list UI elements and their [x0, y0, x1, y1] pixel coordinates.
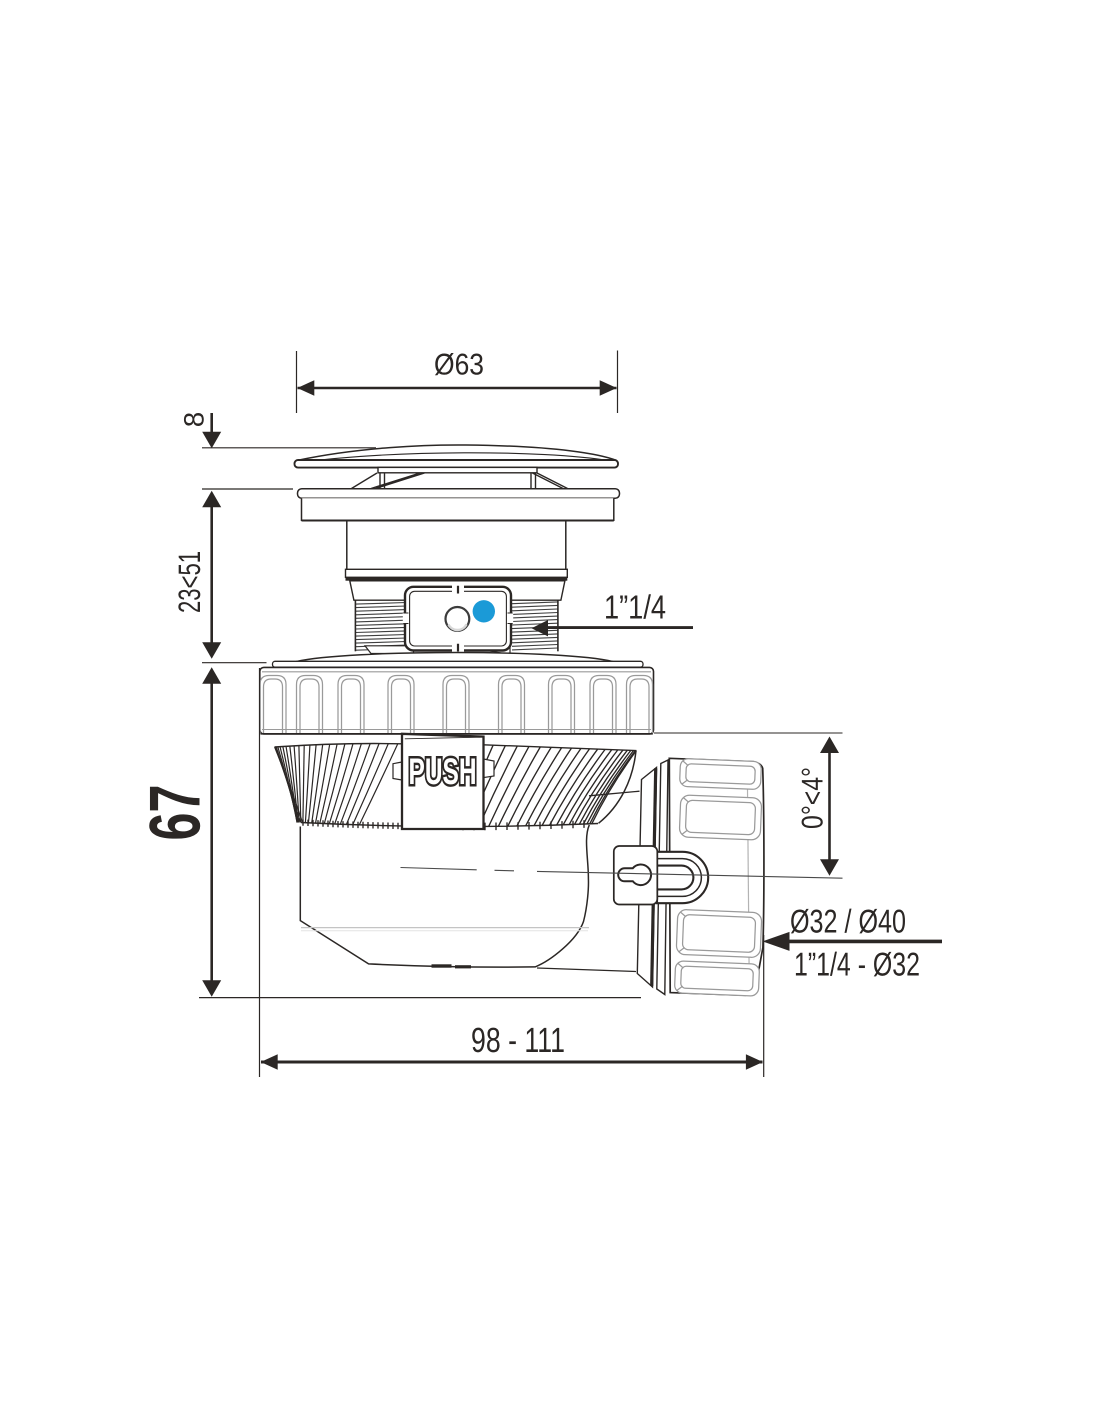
svg-text:Ø63: Ø63: [434, 349, 484, 382]
svg-text:67: 67: [136, 785, 216, 841]
svg-text:0°<4°: 0°<4°: [797, 767, 830, 829]
svg-text:Ø32 / Ø40: Ø32 / Ø40: [790, 903, 906, 940]
svg-text:1”1/4 - Ø32: 1”1/4 - Ø32: [794, 945, 920, 982]
svg-text:PUSH: PUSH: [409, 751, 477, 792]
svg-text:98 - 111: 98 - 111: [471, 1021, 565, 1060]
svg-text:8: 8: [179, 412, 210, 428]
svg-text:23<51: 23<51: [172, 551, 207, 613]
svg-text:1”1/4: 1”1/4: [604, 590, 666, 627]
